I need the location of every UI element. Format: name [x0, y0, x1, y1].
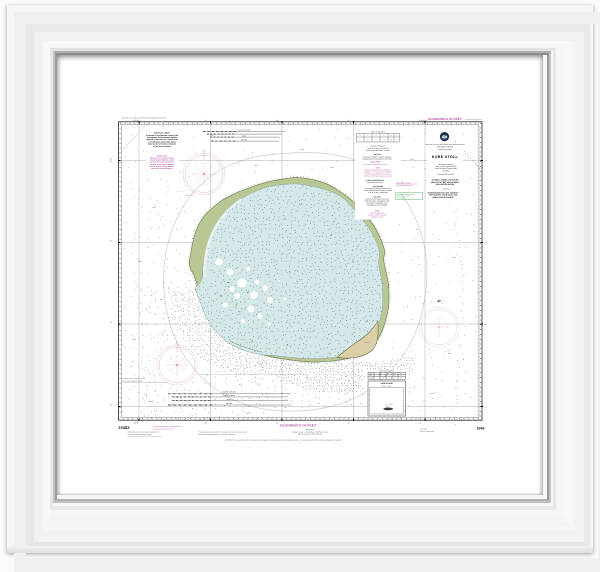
- svg-text:Kure Atoll is the westernmost: Kure Atoll is the westernmost of the: [122, 377, 146, 380]
- svg-text:0.6: 0.6: [393, 378, 395, 380]
- svg-text:NAUTICAL MILES: NAUTICAL MILES: [238, 129, 250, 132]
- svg-text:0.1: 0.1: [386, 378, 388, 380]
- svg-text:988: 988: [448, 352, 451, 355]
- svg-text:1.2: 1.2: [379, 375, 381, 377]
- svg-text:METERS: METERS: [226, 402, 232, 405]
- svg-text:870: 870: [416, 228, 419, 231]
- svg-text:27': 27': [110, 160, 113, 163]
- svg-text:Tide Tables: Tide Tables: [420, 429, 427, 431]
- svg-text:26': 26': [110, 240, 113, 243]
- svg-text:24': 24': [110, 404, 113, 407]
- svg-text:KURE ATOLL: KURE ATOLL: [432, 155, 459, 159]
- svg-text:SCALE 1:20,000: SCALE 1:20,000: [382, 385, 392, 387]
- svg-text:57: 57: [352, 260, 354, 263]
- svg-text:1620: 1620: [300, 148, 304, 151]
- svg-text:N: N: [203, 150, 205, 153]
- svg-text:25: 25: [366, 320, 368, 323]
- svg-text:Lt: Lt: [442, 300, 444, 303]
- svg-text:92: 92: [318, 402, 320, 405]
- svg-text:1.1: 1.1: [379, 378, 381, 380]
- svg-text:MAGNETIC: MAGNETIC: [185, 194, 194, 197]
- svg-text:64: 64: [300, 203, 302, 206]
- svg-text:1510: 1510: [254, 164, 258, 167]
- svg-text:1.8: 1.8: [383, 140, 385, 142]
- svg-text:NAUTICAL MILES: NAUTICAL MILES: [223, 394, 235, 397]
- svg-text:HIGH WATER DATUM: HIGH WATER DATUM: [436, 183, 455, 186]
- svg-text:SCALE 1:48,000: SCALE 1:48,000: [222, 390, 235, 393]
- svg-text:SAND ISLAND: SAND ISLAND: [381, 382, 394, 385]
- svg-text:18': 18': [276, 422, 279, 425]
- svg-text:see U.S. Pacific Coast: see U.S. Pacific Coast: [420, 431, 434, 433]
- svg-text:21st Ed., Apr. 2014 Correctio: 21st Ed., Apr. 2014 Corrections through …: [122, 117, 167, 120]
- svg-text:1740: 1740: [210, 134, 214, 137]
- svg-text:28°: 28°: [109, 158, 112, 161]
- svg-text:44: 44: [254, 230, 256, 233]
- svg-text:12: 12: [390, 140, 392, 142]
- svg-text:1.4: 1.4: [400, 375, 402, 377]
- svg-text:YARDS: YARDS: [241, 134, 246, 137]
- svg-text:National Geospatial-Intelligen: National Geospatial-Intelligence Agency: [128, 434, 153, 436]
- svg-text:0.7: 0.7: [393, 375, 395, 377]
- svg-text:Kure: Kure: [369, 375, 372, 377]
- svg-text:16': 16': [348, 119, 351, 122]
- svg-text:49: 49: [296, 280, 298, 283]
- svg-text:KURE ATOLL: KURE ATOLL: [305, 428, 314, 431]
- svg-text:Midway: Midway: [369, 378, 374, 380]
- svg-text:1140: 1140: [152, 206, 156, 209]
- svg-text:1210: 1210: [150, 400, 154, 403]
- svg-text:High: High: [379, 373, 382, 375]
- svg-text:26': 26': [485, 242, 488, 245]
- svg-text:20': 20': [205, 422, 208, 425]
- svg-text:1105: 1105: [452, 256, 456, 259]
- svg-text:3.7: 3.7: [396, 140, 398, 142]
- svg-text:25': 25': [110, 321, 113, 324]
- svg-text:Sand I: Sand I: [389, 403, 394, 405]
- svg-text:52: 52: [282, 252, 284, 255]
- svg-text:25': 25': [485, 323, 488, 326]
- svg-text:WARNING: The prudent mariner w: WARNING: The prudent mariner will not re…: [225, 439, 343, 442]
- svg-text:0.2: 0.2: [386, 375, 388, 377]
- svg-text:178°22': 178°22': [133, 422, 139, 425]
- svg-text:SOUNDINGS IN FEET: SOUNDINGS IN FEET: [280, 424, 317, 428]
- svg-text:after that date are published: after that date are published in the Loc…: [199, 434, 236, 436]
- svg-text:Green I: Green I: [364, 341, 370, 344]
- svg-text:SOUNDINGS IN FEET: SOUNDINGS IN FEET: [428, 117, 462, 121]
- svg-text:NATIONAL OCEANIC AND ATMOSPHER: NATIONAL OCEANIC AND ATMOSPHERIC ADMINIS…: [425, 144, 464, 146]
- svg-text:1564: 1564: [132, 338, 136, 341]
- svg-text:1.3: 1.3: [400, 378, 402, 380]
- svg-text:18: 18: [222, 250, 224, 253]
- svg-text:24': 24': [485, 406, 488, 409]
- svg-text:302: 302: [246, 412, 249, 415]
- svg-text:1382: 1382: [138, 260, 142, 263]
- svg-text:1222: 1222: [410, 158, 414, 161]
- svg-text:Spr: Spr: [400, 373, 403, 375]
- svg-text:18': 18': [276, 119, 279, 122]
- svg-text:16': 16': [348, 422, 351, 425]
- svg-text:0.3: 0.3: [367, 140, 369, 142]
- svg-text:Compiled and printed at Washin: Compiled and printed at Washington, D.C.: [153, 425, 183, 428]
- svg-text:UNITED STATES: UNITED STATES: [437, 146, 454, 149]
- svg-text:178°14'W: 178°14'W: [419, 119, 427, 122]
- svg-text:Place: Place: [369, 373, 372, 375]
- svg-text:Low: Low: [386, 373, 388, 375]
- svg-text:1342: 1342: [330, 166, 334, 169]
- svg-text:14': 14': [419, 422, 422, 425]
- svg-text:METERS: METERS: [241, 138, 247, 141]
- svg-text:of the State of Hawaii: of the State of Hawaii: [153, 145, 171, 148]
- svg-text:AERIAL PHOTOGRAPHS: AERIAL PHOTOGRAPHS: [432, 196, 454, 199]
- svg-text:15483: 15483: [118, 425, 130, 430]
- svg-text:27': 27': [485, 160, 488, 163]
- svg-text:20': 20': [205, 119, 208, 122]
- svg-text:1260: 1260: [430, 392, 434, 395]
- svg-text:This chart has been corrected: This chart has been corrected from the w…: [199, 432, 247, 434]
- svg-text:SOUNDINGS IN FEET: SOUNDINGS IN FEET: [437, 173, 454, 176]
- svg-text:1846: 1846: [477, 426, 485, 430]
- svg-text:North American Datum of 1983: North American Datum of 1983: [366, 149, 389, 152]
- svg-text:Published weekly Notices to Ma: Published weekly Notices to Mariners iss…: [128, 432, 160, 434]
- svg-text:47: 47: [312, 330, 314, 333]
- svg-text:960: 960: [160, 298, 163, 301]
- svg-text:178°22': 178°22': [133, 119, 139, 122]
- svg-text:61: 61: [341, 298, 343, 301]
- svg-text:Mean: Mean: [393, 373, 396, 375]
- svg-text:58: 58: [330, 234, 332, 237]
- svg-text:(WGS84): (WGS84): [442, 169, 449, 172]
